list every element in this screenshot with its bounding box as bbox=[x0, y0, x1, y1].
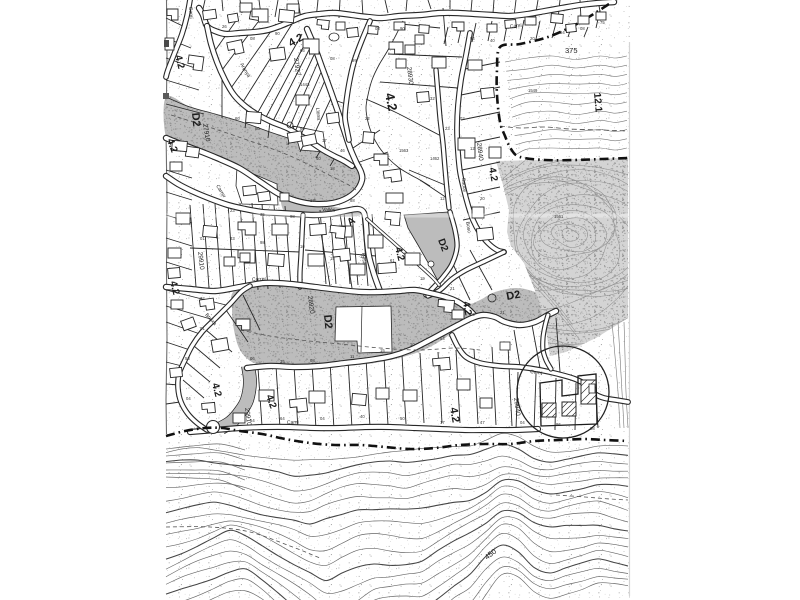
svg-text:11: 11 bbox=[360, 254, 365, 259]
svg-text:Carrer: Carrer bbox=[252, 276, 267, 283]
svg-text:375: 375 bbox=[565, 46, 578, 55]
svg-text:02: 02 bbox=[460, 116, 465, 121]
svg-text:50: 50 bbox=[400, 416, 405, 421]
svg-text:32: 32 bbox=[430, 96, 435, 101]
svg-text:1561: 1561 bbox=[554, 214, 564, 219]
svg-text:04: 04 bbox=[320, 416, 325, 421]
svg-text:Camí: Camí bbox=[287, 420, 300, 426]
svg-text:01: 01 bbox=[200, 326, 205, 331]
svg-text:35: 35 bbox=[260, 212, 265, 217]
svg-text:15: 15 bbox=[330, 256, 335, 261]
svg-text:20: 20 bbox=[530, 36, 535, 41]
svg-text:08: 08 bbox=[330, 56, 335, 61]
svg-text:40: 40 bbox=[490, 38, 495, 43]
svg-text:40: 40 bbox=[360, 414, 365, 419]
svg-text:08: 08 bbox=[375, 26, 380, 31]
svg-text:94: 94 bbox=[470, 36, 475, 41]
svg-text:Sauce: Sauce bbox=[460, 178, 467, 193]
svg-text:08: 08 bbox=[580, 26, 585, 31]
svg-text:23: 23 bbox=[230, 208, 235, 213]
svg-text:94: 94 bbox=[560, 30, 565, 35]
svg-text:Camí: Camí bbox=[187, 7, 194, 20]
svg-text:60: 60 bbox=[300, 126, 305, 131]
svg-text:D2: D2 bbox=[321, 314, 334, 329]
svg-text:90: 90 bbox=[400, 26, 405, 31]
svg-text:54: 54 bbox=[250, 418, 255, 423]
svg-text:17: 17 bbox=[440, 420, 445, 425]
svg-text:61: 61 bbox=[390, 258, 395, 263]
svg-text:10: 10 bbox=[300, 244, 305, 249]
svg-text:1462: 1462 bbox=[430, 156, 440, 161]
svg-text:10: 10 bbox=[410, 342, 415, 347]
svg-text:88: 88 bbox=[350, 198, 355, 203]
svg-text:04: 04 bbox=[186, 396, 191, 401]
svg-text:26: 26 bbox=[222, 24, 227, 29]
svg-text:86: 86 bbox=[556, 422, 561, 427]
svg-text:98: 98 bbox=[590, 426, 595, 431]
svg-text:D2: D2 bbox=[189, 112, 202, 127]
svg-text:46: 46 bbox=[340, 148, 345, 153]
svg-text:54: 54 bbox=[440, 336, 445, 341]
svg-text:1549: 1549 bbox=[528, 88, 538, 93]
svg-text:21: 21 bbox=[500, 310, 505, 315]
svg-text:00: 00 bbox=[470, 312, 475, 317]
svg-text:47: 47 bbox=[480, 420, 485, 425]
svg-text:80: 80 bbox=[255, 126, 260, 131]
svg-text:90: 90 bbox=[275, 31, 280, 36]
svg-text:17: 17 bbox=[322, 138, 327, 143]
svg-text:12: 12 bbox=[470, 146, 475, 151]
svg-text:21: 21 bbox=[450, 286, 455, 291]
svg-text:04: 04 bbox=[520, 420, 525, 425]
svg-text:08: 08 bbox=[310, 358, 315, 363]
svg-text:98: 98 bbox=[290, 214, 295, 219]
svg-text:33: 33 bbox=[230, 236, 235, 241]
svg-text:23: 23 bbox=[445, 126, 450, 131]
svg-text:06: 06 bbox=[250, 356, 255, 361]
svg-text:32: 32 bbox=[200, 296, 205, 301]
svg-text:64: 64 bbox=[280, 416, 285, 421]
svg-text:12.1: 12.1 bbox=[591, 92, 604, 113]
svg-text:08: 08 bbox=[250, 36, 255, 41]
svg-text:18: 18 bbox=[330, 166, 335, 171]
svg-text:1443: 1443 bbox=[300, 82, 310, 87]
svg-text:75: 75 bbox=[600, 20, 605, 25]
svg-text:11: 11 bbox=[350, 354, 355, 359]
svg-text:60: 60 bbox=[235, 116, 240, 121]
svg-text:15: 15 bbox=[380, 348, 385, 353]
svg-text:1563: 1563 bbox=[399, 148, 409, 153]
svg-text:Vallès: Vallès bbox=[322, 207, 336, 213]
svg-text:01: 01 bbox=[200, 236, 205, 241]
svg-text:22: 22 bbox=[365, 116, 370, 121]
svg-text:99: 99 bbox=[352, 58, 357, 63]
svg-text:20: 20 bbox=[480, 196, 485, 201]
svg-text:19: 19 bbox=[420, 276, 425, 281]
svg-text:12: 12 bbox=[440, 196, 445, 201]
svg-text:53: 53 bbox=[185, 356, 190, 361]
svg-text:35: 35 bbox=[280, 359, 285, 364]
svg-text:17: 17 bbox=[310, 198, 315, 203]
svg-text:40: 40 bbox=[316, 156, 321, 161]
svg-text:66: 66 bbox=[300, 48, 305, 53]
svg-text:98: 98 bbox=[260, 240, 265, 245]
svg-text:D2: D2 bbox=[505, 289, 521, 303]
